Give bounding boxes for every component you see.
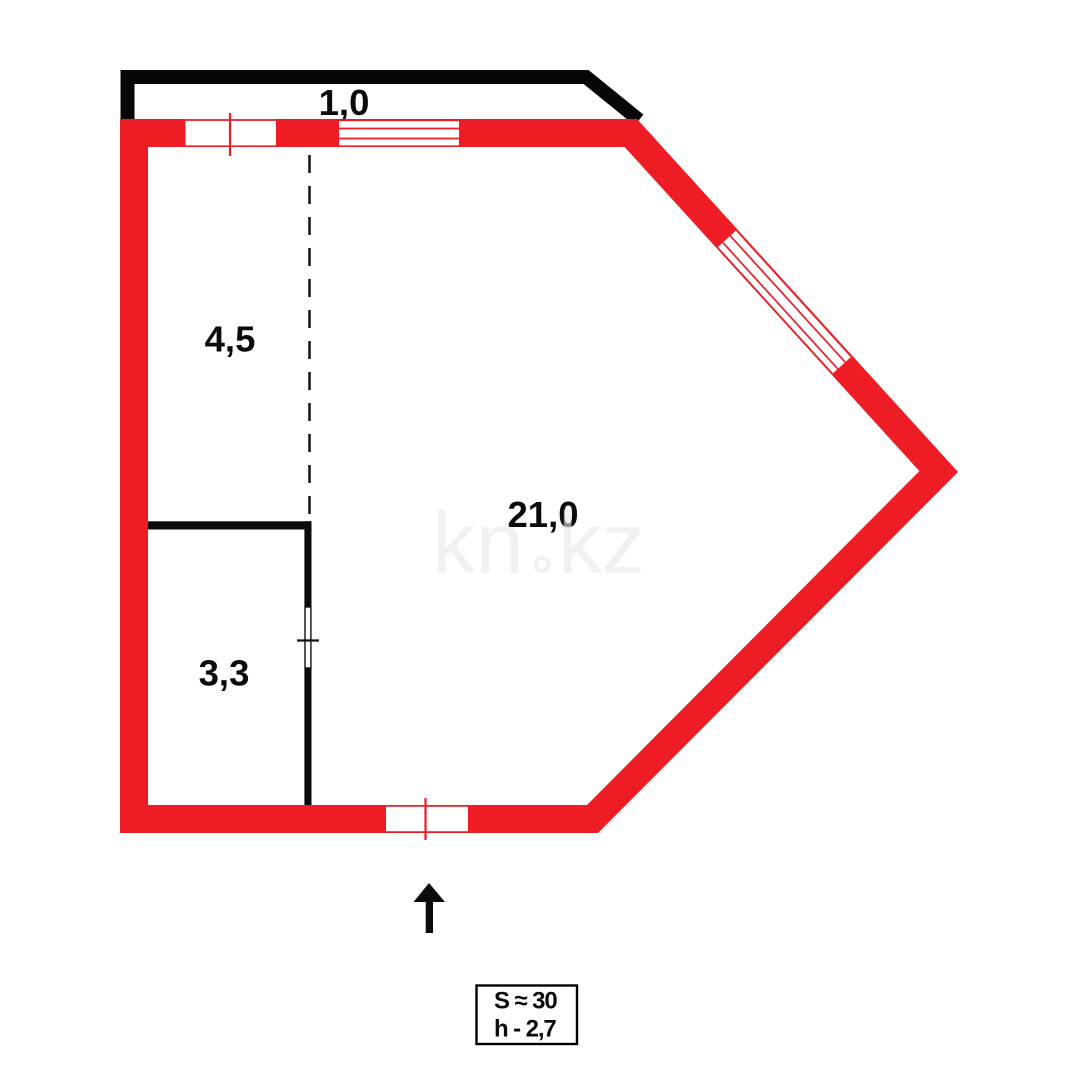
svg-text:kz: kz xyxy=(558,495,645,592)
svg-text:3,3: 3,3 xyxy=(199,653,250,694)
svg-text:S ≈ 30: S ≈ 30 xyxy=(494,988,557,1015)
svg-text:kn: kn xyxy=(432,495,524,592)
svg-text:1,0: 1,0 xyxy=(319,82,370,123)
svg-text:4,5: 4,5 xyxy=(205,319,256,360)
svg-text:h - 2,7: h - 2,7 xyxy=(494,1016,556,1043)
